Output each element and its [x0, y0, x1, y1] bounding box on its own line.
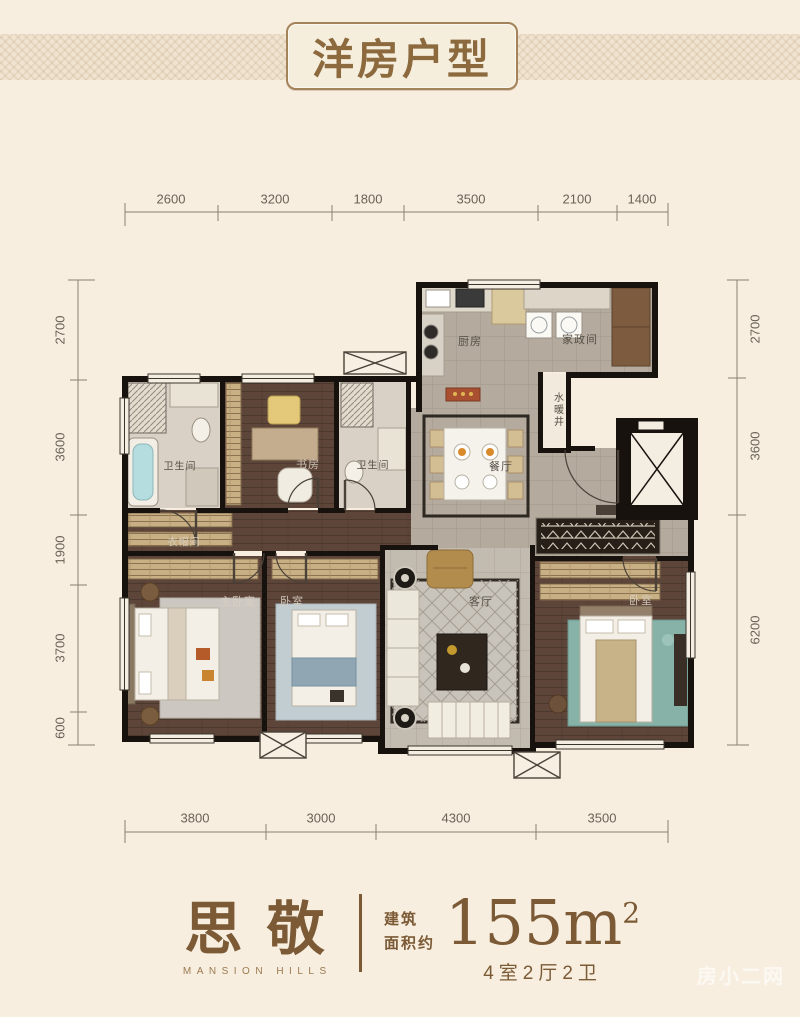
- brand-name-en: MANSION HILLS: [160, 966, 349, 977]
- dim-bottom-2: 4300: [442, 811, 471, 826]
- dim-bottom-3: 3500: [588, 811, 617, 826]
- dim-top-2: 1800: [354, 192, 383, 207]
- room-label-master: 主卧室: [220, 593, 256, 609]
- dim-left-3: 3700: [53, 634, 68, 663]
- brand-name: 思敬: [160, 900, 349, 958]
- room-label-bath1: 卫生间: [164, 458, 197, 473]
- room-spec: 4室2厅2卫: [445, 958, 640, 985]
- dim-top-0: 2600: [157, 192, 186, 207]
- dim-right-1: 3600: [748, 432, 763, 461]
- dim-top-4: 2100: [563, 192, 592, 207]
- dim-right-2: 6200: [748, 616, 763, 645]
- elevator: [630, 421, 684, 506]
- brand-block: 思敬 MANSION HILLS: [160, 900, 349, 977]
- dim-left-1: 3600: [53, 433, 68, 462]
- dim-left-2: 1900: [53, 536, 68, 565]
- room-label-study: 书房: [296, 456, 320, 472]
- room-label-bed3: 卧室: [629, 592, 653, 608]
- room-label-kitchen: 厨房: [458, 333, 482, 349]
- area-block: 155m2 4室2厅2卫: [445, 892, 640, 985]
- area-value: 155m2: [445, 892, 640, 954]
- watermark: 房小二网: [697, 960, 785, 989]
- room-label-cloak: 衣帽间: [168, 534, 201, 549]
- dim-top-1: 3200: [261, 192, 290, 207]
- room-label-bath2: 卫生间: [357, 457, 390, 472]
- room-label-shaft: 水暖井: [550, 392, 565, 428]
- area-number: 155m: [445, 886, 622, 959]
- floor-plan-svg: [0, 0, 800, 1017]
- dim-left-4: 600: [53, 717, 68, 739]
- area-label-line2: 面积约: [384, 932, 435, 956]
- dim-top-3: 3500: [457, 192, 486, 207]
- room-label-bed2: 卧室: [280, 593, 304, 609]
- room-label-laundry: 家政间: [562, 331, 598, 347]
- dim-left-0: 2700: [53, 316, 68, 345]
- area-label-line1: 建筑: [384, 908, 435, 932]
- dim-top-5: 1400: [628, 192, 657, 207]
- dim-right-0: 2700: [748, 315, 763, 344]
- room-label-living: 客厅: [469, 593, 493, 609]
- room-label-dining: 餐厅: [489, 458, 513, 474]
- floorplan-page: 洋房户型: [0, 0, 800, 1017]
- footer-divider: [359, 894, 362, 972]
- dim-bottom-1: 3000: [307, 811, 336, 826]
- area-label: 建筑 面积约: [384, 908, 435, 956]
- dim-bottom-0: 3800: [181, 811, 210, 826]
- area-superscript: 2: [622, 896, 640, 929]
- footer: 思敬 MANSION HILLS 建筑 面积约 155m2 4室2厅2卫: [0, 892, 800, 985]
